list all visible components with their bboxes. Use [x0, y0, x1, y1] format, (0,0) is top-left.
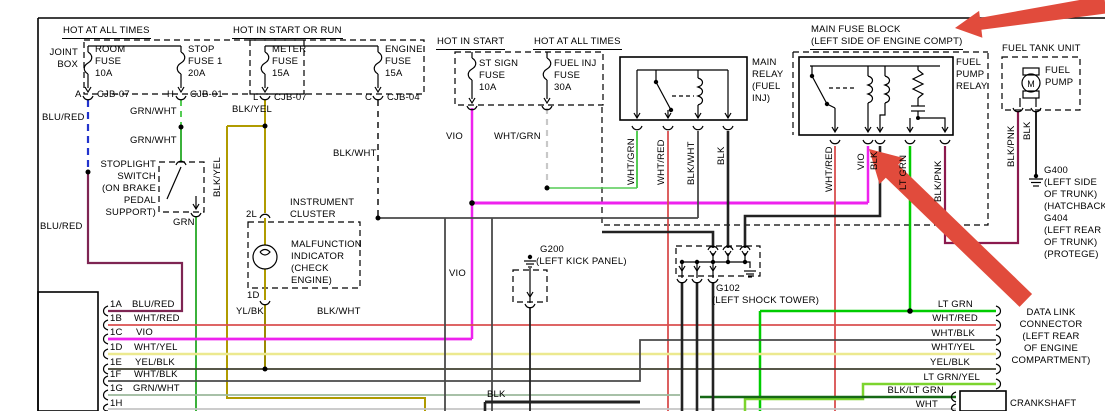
- connector-h: H: [167, 89, 174, 101]
- row-label-lt-grn: LT GRN: [893, 299, 973, 311]
- wire-label-grn-wht-1: GRN/WHT: [130, 106, 177, 118]
- header-hot-in-start-text: HOT IN START: [436, 36, 505, 50]
- engine-fuse-label: ENGINE FUSE 15A: [385, 44, 423, 80]
- header-hot-in-start-or-run: HOT IN START OR RUN: [232, 25, 343, 39]
- wire-label-vio-vertical: VIO: [856, 153, 868, 170]
- wire-label-blk-wht-vertical: BLK/WHT: [686, 141, 698, 185]
- connector-a: A: [75, 89, 82, 101]
- header-fuel-tank-unit: FUEL TANK UNIT: [1002, 43, 1081, 55]
- wire-label-blk-1: BLK: [487, 389, 506, 401]
- wire-label-wht-red-vertical-1: WHT/RED: [656, 139, 668, 185]
- g200-label: G200: [540, 244, 564, 256]
- pin-1e: 1E: [110, 357, 122, 369]
- pin-1c: 1C: [110, 327, 123, 339]
- g400-g404-label: G400 (LEFT SIDE OF TRUNK) (HATCHBACK) G4…: [1044, 165, 1105, 261]
- wire-label-blu-red-2: BLU/RED: [40, 221, 83, 233]
- wire-label-wht-grn-1: WHT/GRN: [494, 131, 541, 143]
- connector-l: L: [253, 92, 258, 104]
- wire-label-blk-vertical-1: BLK: [716, 146, 728, 165]
- header-hot-in-start: HOT IN START: [436, 36, 505, 50]
- wire-label-grn: GRN: [173, 217, 195, 229]
- crankshaft-label: CRANKSHAFT: [1010, 398, 1076, 410]
- wire-label-blk-pnk-vertical-1: BLK/PNK: [933, 160, 945, 202]
- connector-l-cjb07: CJB-07: [274, 92, 307, 104]
- wire-label-blk-vertical-2: BLK: [869, 151, 881, 170]
- wire-label-blk-yel-1: BLK/YEL: [232, 104, 272, 116]
- pin-1f-color: WHT/BLK: [134, 369, 178, 381]
- motor-m-label: M: [1027, 79, 1035, 89]
- wire-label-blk-wht-2: BLK/WHT: [317, 306, 361, 318]
- wire-label-grn-wht-2: GRN/WHT: [130, 135, 177, 147]
- row-label-blk-lt-grn: BLK/LT GRN: [864, 385, 944, 397]
- solid-boxes: [38, 57, 1006, 411]
- header-main-fuse-block-text: MAIN FUSE BLOCK (LEFT SIDE OF ENGINE COM…: [810, 24, 963, 50]
- wire-wht-blk: [108, 340, 996, 381]
- pin-1b: 1B: [110, 313, 122, 325]
- fuel-pump-label: FUEL PUMP: [1045, 65, 1073, 89]
- fuel-pump-relay-label: FUEL PUMP RELAY: [956, 57, 987, 93]
- meter-fuse-label: METER FUSE 15A: [272, 44, 306, 80]
- wire-label-vio-1: VIO: [446, 131, 463, 143]
- connector-c-cjb04: CJB-04: [387, 92, 420, 104]
- pin-1h: 1H: [110, 398, 123, 410]
- connector-1d: 1D: [247, 290, 260, 302]
- pin-1a-color: BLU/RED: [132, 299, 175, 311]
- st-sign-fuse-label: ST SIGN FUSE 10A: [479, 58, 518, 94]
- pin-1a: 1A: [110, 299, 122, 311]
- row-label-wht: WHT: [858, 399, 938, 411]
- header-hot-in-start-or-run-text: HOT IN START OR RUN: [232, 25, 343, 39]
- room-fuse-label: ROOM FUSE 10A: [95, 44, 125, 80]
- stoplight-switch-label: STOPLIGHT SWITCH (ON BRAKE PEDAL SUPPORT…: [90, 159, 156, 219]
- pin-1g: 1G: [110, 383, 123, 395]
- instrument-cluster-label: INSTRUMENT CLUSTER: [290, 197, 354, 221]
- joint-box-label: JOINT BOX: [38, 47, 78, 71]
- pin-1e-color: YEL/BLK: [135, 357, 175, 369]
- header-hot-at-all-times-1: HOT AT ALL TIMES: [62, 25, 151, 39]
- pin-1d-color: WHT/YEL: [134, 342, 178, 354]
- header-hot-at-all-times-2-text: HOT AT ALL TIMES: [533, 36, 622, 50]
- g102-label: G102: [716, 283, 740, 295]
- wire-label-wht-red-vertical-2: WHT/RED: [824, 146, 836, 192]
- row-label-lt-grn-yel: LT GRN/YEL: [900, 372, 980, 384]
- row-label-wht-red: WHT/RED: [898, 313, 978, 325]
- main-relay-label: MAIN RELAY (FUEL INJ): [752, 57, 783, 105]
- row-label-wht-yel: WHT/YEL: [895, 342, 975, 354]
- pin-1b-color: WHT/RED: [134, 313, 180, 325]
- fuel-inj-fuse-label: FUEL INJ FUSE 30A: [554, 58, 596, 94]
- wire-label-lt-grn-vertical: LT GRN: [898, 155, 910, 190]
- header-hot-at-all-times-2: HOT AT ALL TIMES: [533, 36, 622, 50]
- wire-label-blu-red-1: BLU/RED: [42, 112, 85, 124]
- wire-label-blk-yel-vertical: BLK/YEL: [212, 157, 224, 197]
- pin-1c-color: VIO: [136, 327, 153, 339]
- connector-c: C: [365, 92, 372, 104]
- wiring-diagram: M HOT AT ALL TIMES HOT IN START OR RUN H…: [0, 0, 1105, 411]
- wire-label-yl-bk: YL/BK: [236, 306, 264, 318]
- row-label-yel-blk: YEL/BLK: [890, 357, 970, 369]
- g102-location-label: (LEFT SHOCK TOWER): [712, 295, 819, 307]
- pin-1g-color: GRN/WHT: [133, 383, 180, 395]
- wire-label-blk-pnk-vertical-2: BLK/PNK: [1006, 125, 1018, 167]
- wire-wht-grn: [547, 131, 637, 188]
- g200-location-label: (LEFT KICK PANEL): [536, 256, 627, 268]
- wire-label-wht-grn-vertical: WHT/GRN: [626, 138, 638, 185]
- connector-a-cjb07: CJB-07: [97, 89, 130, 101]
- data-link-connector-label: DATA LINK CONNECTOR (LEFT REAR OF ENGINE…: [1000, 307, 1102, 367]
- wire-label-vio-2: VIO: [449, 268, 466, 280]
- pin-1d: 1D: [110, 342, 123, 354]
- malfunction-indicator-label: MALFUNCTION INDICATOR (CHECK ENGINE): [291, 239, 362, 287]
- row-label-wht-blk: WHT/BLK: [895, 328, 975, 340]
- header-hot-at-all-times-1-text: HOT AT ALL TIMES: [62, 25, 151, 39]
- connector-2l: 2L: [246, 209, 257, 221]
- header-main-fuse-block: MAIN FUSE BLOCK (LEFT SIDE OF ENGINE COM…: [810, 24, 963, 50]
- pin-1f: 1F: [110, 369, 122, 381]
- wire-label-blk-vertical-3: BLK: [1022, 121, 1034, 140]
- stop-fuse-label: STOP FUSE 1 20A: [188, 44, 222, 80]
- connector-h-cjb01: CJB-01: [190, 89, 223, 101]
- junction-dots: [86, 74, 1039, 372]
- red-arrow-icon-top: [953, 0, 1105, 41]
- wire-label-blk-wht-1: BLK/WHT: [333, 148, 377, 160]
